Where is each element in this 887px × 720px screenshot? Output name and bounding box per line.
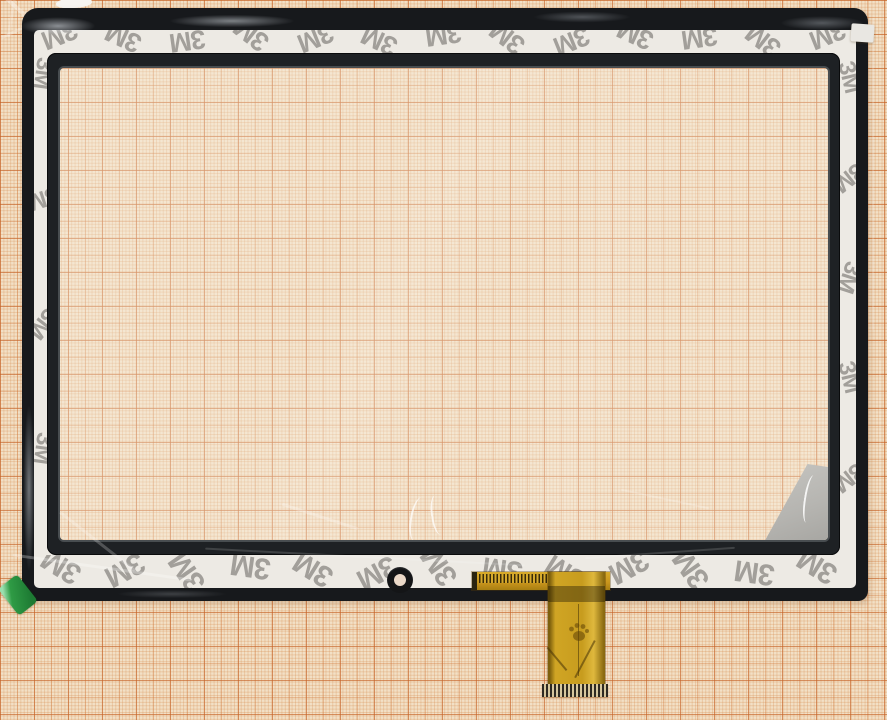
tape-strip-right: 3M3M3M3M3M bbox=[840, 53, 856, 555]
tape-brand-logo: 3M bbox=[102, 30, 146, 53]
tape-brand-logo: 3M bbox=[34, 182, 47, 215]
tape-brand-logo: 3M bbox=[840, 158, 856, 196]
plastic-wrinkle bbox=[879, 360, 881, 690]
tape-brand-logo: 3M bbox=[229, 555, 272, 584]
fpc-tail bbox=[548, 572, 605, 686]
tape-brand-logo: 3M bbox=[614, 30, 658, 53]
camera-hole-center bbox=[394, 574, 406, 586]
fpc-bond-fingers bbox=[479, 574, 553, 583]
photo-stage: 3M3M3M3M3M3M3M3M3M3M3M3M3M 3M3M3M3M3M3M3… bbox=[0, 0, 887, 720]
crease-line bbox=[547, 647, 567, 671]
tape-brand-logo: 3M bbox=[680, 30, 719, 53]
tape-brand-logo: 3M bbox=[840, 59, 856, 95]
fpc-shadow bbox=[548, 586, 605, 602]
tape-brand-logo: 3M bbox=[668, 555, 715, 588]
tape-strip-left: 3M3M3M3M bbox=[34, 53, 47, 555]
inner-frame bbox=[47, 53, 840, 555]
glass-window bbox=[60, 68, 828, 540]
tape-brand-logo: 3M bbox=[840, 458, 856, 496]
tape-brand-logo: 3M bbox=[806, 30, 849, 53]
tape-brand-logo: 3M bbox=[34, 56, 47, 90]
plastic-wrinkle bbox=[872, 18, 874, 330]
tape-brand-logo: 3M bbox=[604, 555, 653, 588]
digitizer-panel: 3M3M3M3M3M3M3M3M3M3M3M3M3M 3M3M3M3M3M3M3… bbox=[22, 8, 868, 601]
peel-tab-highlight bbox=[800, 475, 819, 524]
tape-brand-logo: 3M bbox=[38, 30, 81, 53]
tape-brand-logo: 3M bbox=[733, 555, 776, 588]
tape-brand-logo: 3M bbox=[485, 30, 530, 53]
tape-brand-logo: 3M bbox=[358, 30, 402, 53]
tape-brand-logo: 3M bbox=[34, 431, 47, 465]
paw-logo-icon bbox=[568, 620, 590, 644]
tape-brand-logo: 3M bbox=[164, 555, 211, 588]
tape-brand-logo: 3M bbox=[840, 359, 856, 395]
tape-brand-logo: 3M bbox=[424, 30, 463, 50]
tape-brand-logo: 3M bbox=[294, 30, 337, 53]
tape-brand-logo: 3M bbox=[229, 30, 274, 53]
tape-brand-logo: 3M bbox=[793, 555, 843, 588]
glass-sheen bbox=[60, 68, 828, 540]
camera-hole bbox=[387, 567, 413, 593]
tape-brand-logo: 3M bbox=[840, 258, 856, 295]
tape-brand-logo: 3M bbox=[741, 30, 786, 53]
tape-tab bbox=[850, 23, 874, 43]
tape-brand-logo: 3M bbox=[34, 303, 47, 342]
tape-brand-logo: 3M bbox=[550, 30, 593, 53]
tape-brand-logo: 3M bbox=[289, 555, 339, 588]
tape-brand-logo: 3M bbox=[168, 30, 207, 53]
tape-strip-top: 3M3M3M3M3M3M3M3M3M3M3M3M3M bbox=[34, 30, 856, 53]
fpc-connector-fingers bbox=[542, 684, 608, 697]
